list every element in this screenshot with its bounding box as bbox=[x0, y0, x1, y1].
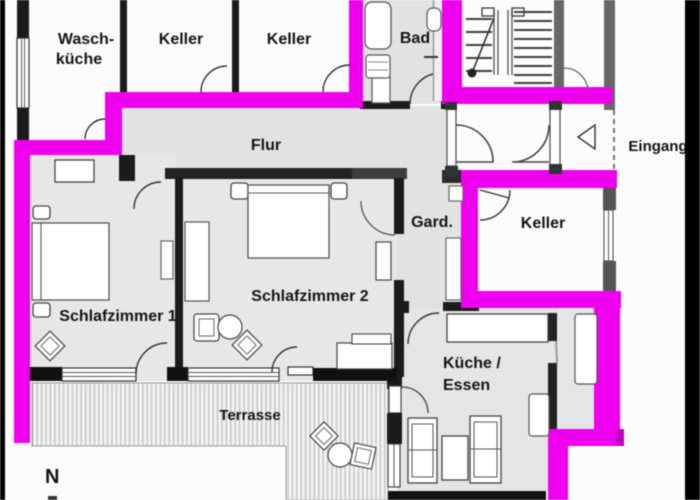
svg-text:Keller: Keller bbox=[267, 31, 311, 48]
svg-text:Keller: Keller bbox=[159, 31, 203, 48]
svg-text:Schlafzimmer 1: Schlafzimmer 1 bbox=[59, 308, 176, 325]
svg-text:küche: küche bbox=[56, 51, 102, 68]
svg-text:Gard.: Gard. bbox=[411, 214, 453, 231]
svg-text:Küche /: Küche / bbox=[443, 355, 501, 372]
svg-text:N: N bbox=[45, 466, 59, 488]
svg-text:Terrasse: Terrasse bbox=[219, 407, 280, 424]
svg-text:Essen: Essen bbox=[443, 377, 490, 394]
svg-text:Eingang: Eingang bbox=[628, 138, 687, 155]
svg-text:Schlafzimmer 2: Schlafzimmer 2 bbox=[251, 288, 368, 305]
svg-text:Bad: Bad bbox=[400, 30, 430, 47]
svg-text:Wasch-: Wasch- bbox=[58, 31, 114, 48]
svg-text:Flur: Flur bbox=[251, 137, 281, 154]
svg-text:Keller: Keller bbox=[521, 215, 565, 232]
